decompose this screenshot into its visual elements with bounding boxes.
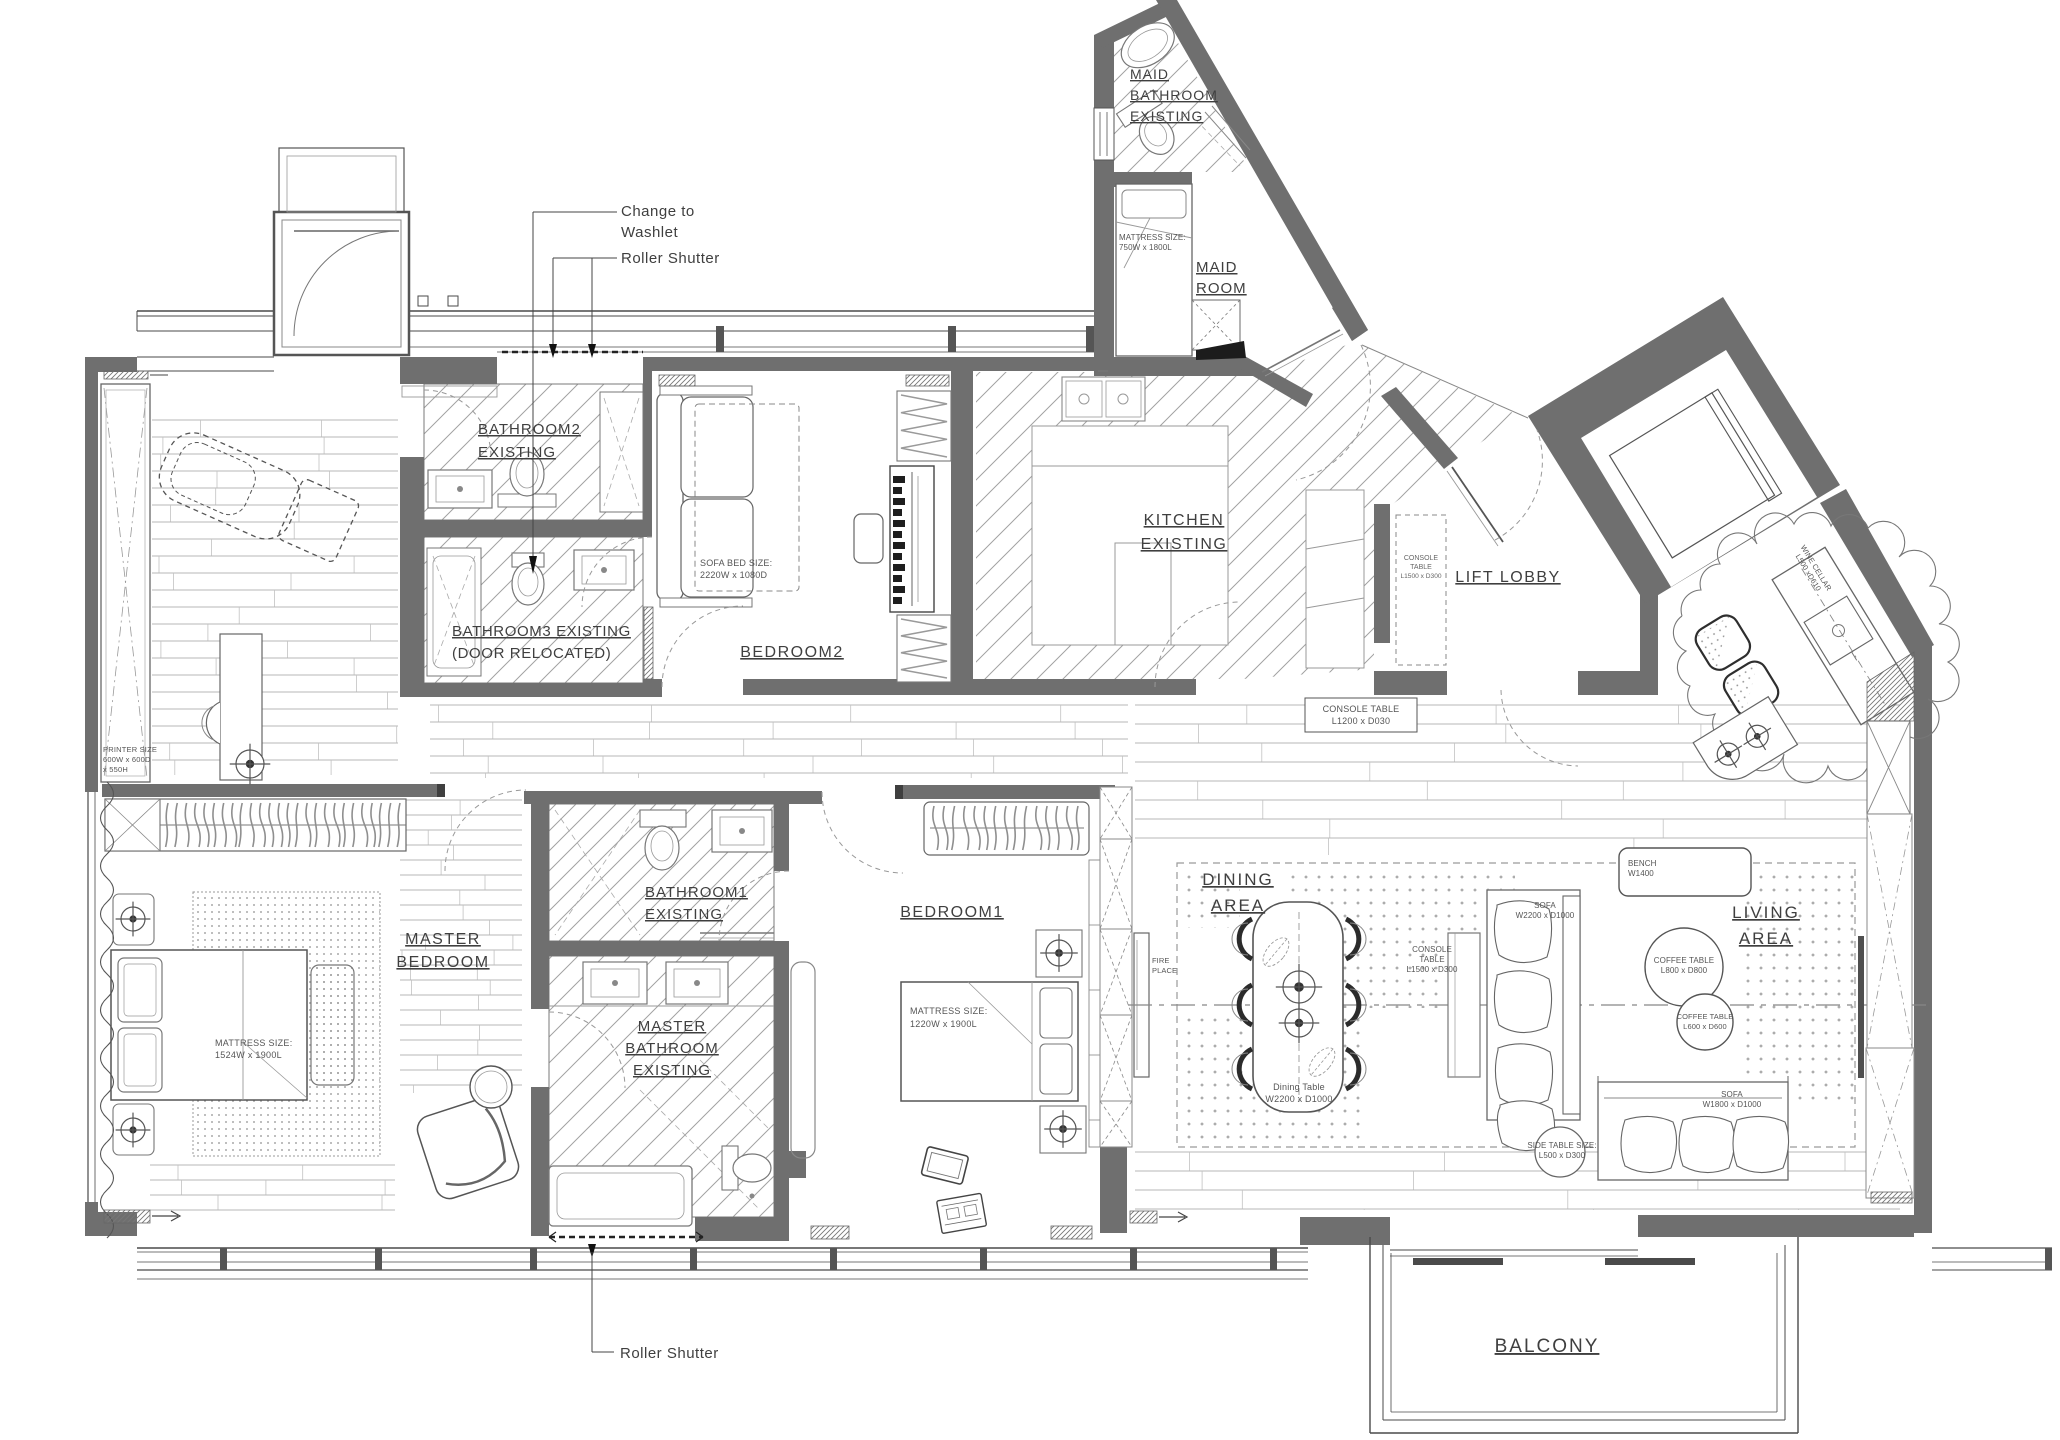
svg-text:SIDE TABLE SIZE:: SIDE TABLE SIZE: — [1527, 1141, 1596, 1150]
svg-text:MAID: MAID — [1196, 259, 1238, 276]
svg-text:W1400: W1400 — [1628, 869, 1654, 878]
svg-text:MATTRESS SIZE:: MATTRESS SIZE: — [910, 1006, 988, 1016]
svg-text:Roller Shutter: Roller Shutter — [621, 250, 720, 267]
svg-text:EXISTING: EXISTING — [1130, 108, 1203, 124]
svg-text:PLACE: PLACE — [1152, 966, 1177, 975]
svg-text:Roller Shutter: Roller Shutter — [620, 1345, 719, 1362]
svg-text:SOFA: SOFA — [1534, 901, 1556, 910]
svg-text:BATHROOM: BATHROOM — [625, 1040, 719, 1057]
svg-text:2220W x 1080D: 2220W x 1080D — [700, 570, 767, 580]
svg-text:L800 x D800: L800 x D800 — [1661, 966, 1708, 975]
svg-text:CONSOLE: CONSOLE — [1404, 555, 1439, 562]
svg-text:MAID: MAID — [1130, 66, 1169, 82]
svg-text:L1200 x D030: L1200 x D030 — [1332, 716, 1390, 726]
svg-text:BATHROOM3 EXISTING: BATHROOM3 EXISTING — [452, 623, 631, 640]
svg-text:Change to: Change to — [621, 203, 695, 220]
svg-text:LIVING: LIVING — [1732, 903, 1800, 922]
svg-text:L600 x D600: L600 x D600 — [1683, 1022, 1727, 1031]
svg-text:1524W x 1900L: 1524W x 1900L — [215, 1050, 282, 1060]
svg-text:L500 x D300: L500 x D300 — [1539, 1151, 1586, 1160]
svg-text:KITCHEN: KITCHEN — [1144, 512, 1225, 529]
svg-text:BATHROOM1: BATHROOM1 — [645, 884, 748, 901]
svg-text:TABLE: TABLE — [1410, 564, 1432, 571]
svg-text:BEDROOM: BEDROOM — [396, 954, 489, 971]
svg-text:BALCONY: BALCONY — [1495, 1336, 1600, 1357]
svg-text:SOFA: SOFA — [1721, 1090, 1743, 1099]
svg-text:PRINTER SIZE: PRINTER SIZE — [103, 745, 157, 754]
svg-text:DINING: DINING — [1202, 870, 1274, 889]
svg-text:COFFEE TABLE: COFFEE TABLE — [1677, 1012, 1734, 1021]
svg-text:EXISTING: EXISTING — [1141, 536, 1228, 553]
svg-text:W2200 x D1000: W2200 x D1000 — [1265, 1094, 1332, 1104]
svg-text:LIFT LOBBY: LIFT LOBBY — [1455, 569, 1560, 586]
svg-text:BATHROOM2: BATHROOM2 — [478, 421, 581, 438]
svg-text:L1500 x D300: L1500 x D300 — [1406, 965, 1457, 974]
svg-text:L1500 x D300: L1500 x D300 — [1400, 573, 1441, 580]
svg-text:MASTER: MASTER — [638, 1018, 707, 1035]
svg-text:W2200 x D1000: W2200 x D1000 — [1516, 911, 1575, 920]
svg-text:BENCH: BENCH — [1628, 859, 1657, 868]
svg-text:FIRE: FIRE — [1152, 956, 1169, 965]
svg-text:600W x 600D: 600W x 600D — [103, 755, 151, 764]
svg-text:EXISTING: EXISTING — [633, 1062, 711, 1079]
svg-text:MATTRESS SIZE:: MATTRESS SIZE: — [1119, 233, 1186, 242]
svg-text:(DOOR RELOCATED): (DOOR RELOCATED) — [452, 645, 611, 662]
svg-text:EXISTING: EXISTING — [645, 906, 723, 923]
svg-text:BEDROOM2: BEDROOM2 — [740, 644, 844, 661]
svg-text:W1800 x D1000: W1800 x D1000 — [1703, 1100, 1762, 1109]
svg-text:1220W x 1900L: 1220W x 1900L — [910, 1019, 977, 1029]
svg-text:Washlet: Washlet — [621, 224, 678, 241]
svg-text:COFFEE TABLE: COFFEE TABLE — [1654, 956, 1714, 965]
svg-text:SOFA BED SIZE:: SOFA BED SIZE: — [700, 558, 772, 568]
svg-text:MATTRESS SIZE:: MATTRESS SIZE: — [215, 1038, 293, 1048]
svg-text:TABLE: TABLE — [1419, 955, 1444, 964]
svg-text:AREA: AREA — [1211, 896, 1265, 915]
svg-text:ROOM: ROOM — [1196, 280, 1247, 297]
svg-text:AREA: AREA — [1739, 929, 1793, 948]
svg-text:MASTER: MASTER — [405, 931, 481, 948]
svg-text:750W x 1800L: 750W x 1800L — [1119, 243, 1172, 252]
svg-text:x 550H: x 550H — [103, 765, 128, 774]
svg-text:BATHROOM: BATHROOM — [1130, 87, 1218, 103]
svg-text:CONSOLE: CONSOLE — [1412, 945, 1452, 954]
svg-text:Dining Table: Dining Table — [1273, 1082, 1325, 1092]
svg-text:CONSOLE TABLE: CONSOLE TABLE — [1323, 704, 1400, 714]
svg-text:BEDROOM1: BEDROOM1 — [900, 904, 1004, 921]
svg-text:EXISTING: EXISTING — [478, 444, 556, 461]
